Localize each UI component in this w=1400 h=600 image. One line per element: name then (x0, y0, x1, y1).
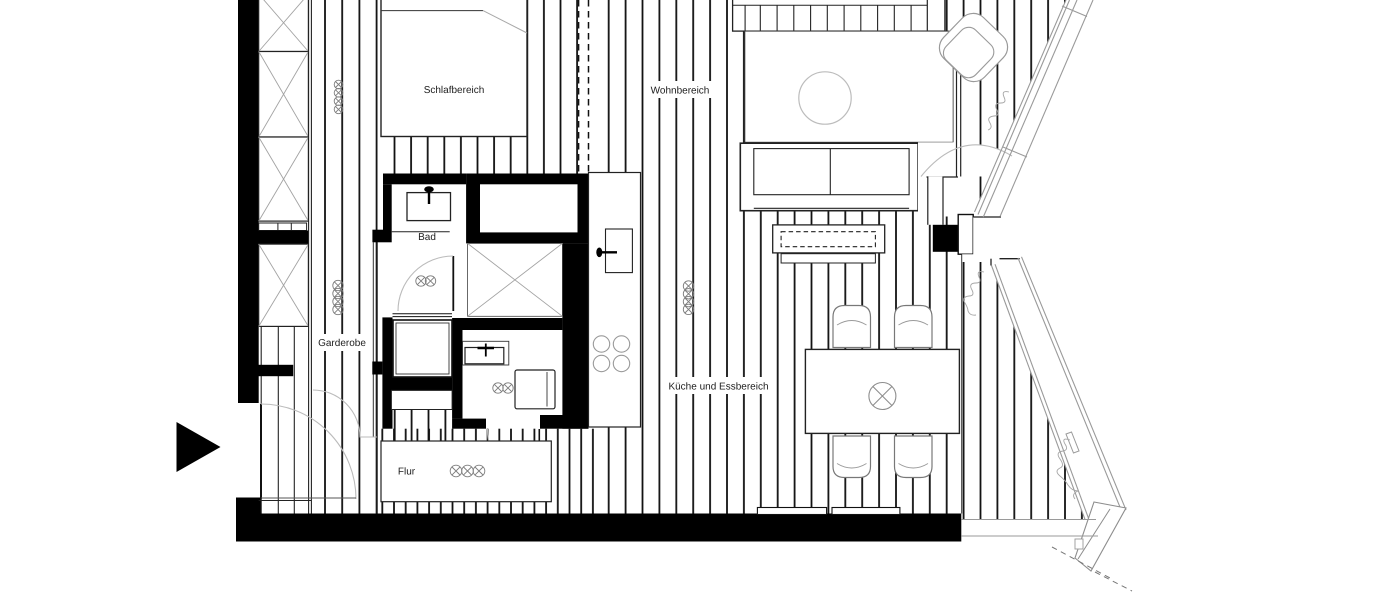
svg-text:Bad: Bad (418, 232, 436, 243)
svg-text:Wohnbereich: Wohnbereich (651, 86, 710, 97)
svg-text:Flur: Flur (398, 467, 416, 478)
svg-text:Garderobe: Garderobe (318, 338, 366, 349)
svg-text:Küche und Essbereich: Küche und Essbereich (668, 382, 768, 393)
svg-text:Schlafbereich: Schlafbereich (424, 85, 485, 96)
